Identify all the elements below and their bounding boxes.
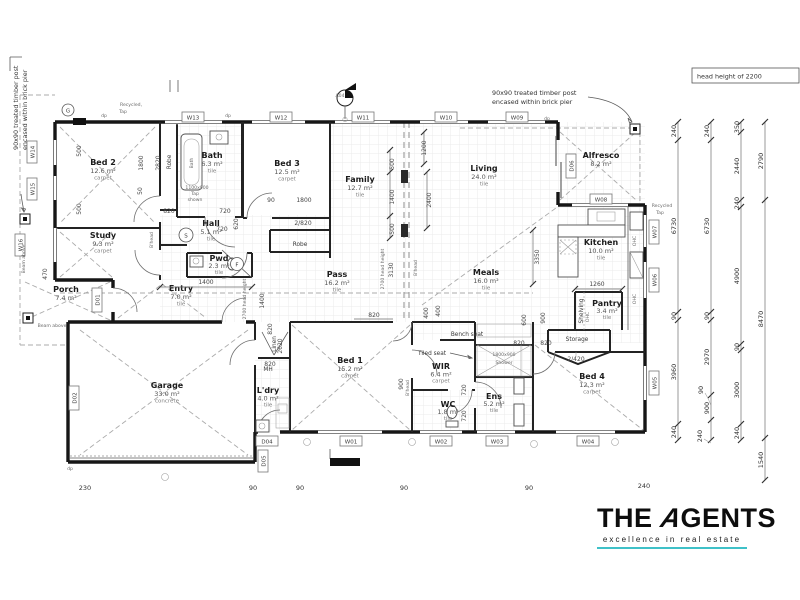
door-tag: D04	[261, 440, 273, 446]
dim-text: 820	[264, 361, 276, 368]
svg-text:24.0 m²: 24.0 m²	[471, 173, 497, 181]
svg-text:33.0 m²: 33.0 m²	[154, 390, 180, 398]
window-tag: W07	[653, 225, 659, 238]
svg-text:3.4 m²: 3.4 m²	[596, 307, 618, 315]
dim-text: 350	[733, 121, 741, 133]
dim-text: 8470	[757, 311, 765, 328]
window-tag: W09	[511, 116, 524, 122]
dim-text: 240	[670, 125, 678, 137]
dim-text: 1400	[389, 189, 396, 204]
floor-waste-symbol: F	[235, 263, 238, 269]
door-tag: D01	[96, 294, 102, 305]
window-tag: W15	[31, 182, 37, 195]
dim-text: 90	[400, 484, 408, 492]
svg-text:6.3 m²: 6.3 m²	[201, 160, 223, 168]
dim-text: 620	[233, 218, 240, 230]
svg-text:2.3 m²: 2.3 m²	[208, 262, 230, 270]
dim-text: 820	[513, 340, 525, 347]
section-tag: A04	[336, 93, 345, 99]
recycled-tap-note: Tap	[655, 210, 664, 216]
dim-text: 1800	[296, 197, 311, 204]
dim-text: 240	[638, 482, 650, 490]
dim-text: 3000	[733, 382, 741, 399]
door-tag: D02	[73, 392, 79, 403]
robe-label: Robe	[293, 242, 308, 248]
svg-text:7.0 m²: 7.0 m²	[170, 293, 192, 301]
post-note-right: encased within brick pier	[492, 98, 573, 106]
svg-text:8.2 m²: 8.2 m²	[590, 160, 612, 168]
dim-text: 90	[670, 312, 678, 320]
dim-text: 500	[76, 145, 83, 157]
dim-text: 2440	[733, 158, 741, 175]
window-tag: W08	[595, 198, 608, 204]
downpipe-mark: dp	[67, 466, 73, 472]
svg-text:Porch: Porch	[53, 285, 79, 294]
gas-symbol: G	[66, 108, 70, 114]
dim-text: 240	[733, 197, 741, 209]
dim-text: 1260	[589, 281, 604, 288]
svg-text:12.7 m²: 12.7 m²	[347, 184, 373, 192]
svg-text:carpet: carpet	[94, 249, 113, 255]
dim-text: 400	[435, 305, 442, 317]
svg-text:Pass: Pass	[327, 270, 348, 279]
svg-text:tile: tile	[480, 182, 489, 188]
dim-text: 500	[389, 223, 396, 235]
storage-label: Storage	[566, 337, 589, 343]
window-tag: W12	[275, 116, 287, 122]
robe-label: Robe	[167, 154, 173, 169]
svg-text:16.2 m²: 16.2 m²	[324, 279, 350, 287]
shower-size-label: 1100x900	[185, 185, 208, 191]
dim-text: 3960	[670, 364, 678, 381]
svg-text:12.6 m²: 12.6 m²	[90, 167, 116, 175]
svg-text:10.0 m²: 10.0 m²	[588, 247, 614, 255]
svg-text:carpet: carpet	[278, 177, 297, 183]
svg-text:tile: tile	[597, 256, 606, 262]
dim-text: 6730	[670, 218, 678, 235]
dim-text: 240	[703, 125, 711, 137]
window-tag: W01	[345, 440, 357, 446]
svg-text:carpet: carpet	[432, 379, 451, 385]
svg-text:Study: Study	[90, 231, 117, 240]
downpipe-mark: dp	[101, 113, 107, 119]
dim-text: 900	[703, 402, 711, 414]
smoke-alarm-symbol: S	[184, 234, 188, 240]
bhead-label: B'head	[405, 380, 411, 396]
svg-text:tile: tile	[356, 193, 365, 199]
window-tag: W02	[435, 440, 447, 446]
svg-text:6.4 m²: 6.4 m²	[430, 371, 452, 379]
downpipe-mark: dp	[225, 113, 231, 119]
dim-text: 720	[219, 208, 231, 215]
logo-underline	[597, 547, 747, 549]
shower-label: Shower	[495, 360, 512, 366]
dim-text: 900	[540, 312, 547, 324]
dim-text: 500	[76, 203, 83, 215]
svg-text:Bed 4: Bed 4	[579, 372, 605, 381]
dim-text: 720	[461, 384, 468, 396]
dim-text: 2/420	[567, 356, 584, 363]
svg-text:concrete: concrete	[155, 399, 180, 405]
dim-text: 1540	[757, 452, 765, 469]
svg-text:Family: Family	[345, 175, 375, 184]
recycled-tap-note: Recycled,	[120, 102, 143, 108]
window-tag: W11	[357, 116, 369, 122]
window-tag: W05	[653, 376, 659, 389]
dim-text: 1200	[421, 140, 428, 155]
dim-text: 820	[163, 208, 175, 215]
dim-text: 820	[540, 340, 552, 347]
room-bed1: Bed 115.2 m²carpet	[337, 356, 363, 380]
room-study: Study9.3 m²carpet	[90, 231, 117, 255]
dim-text: 3130	[388, 262, 395, 277]
beam-above-note: Beam above	[38, 323, 67, 329]
dim-text: 2400	[426, 192, 433, 207]
dim-text: 2820	[155, 155, 162, 170]
svg-text:Alfresco: Alfresco	[583, 151, 620, 160]
dim-text: 820	[267, 323, 274, 335]
svg-text:tile: tile	[264, 403, 273, 409]
logo-stylized-a: A	[658, 505, 683, 532]
svg-text:Bath: Bath	[201, 151, 222, 160]
dim-text: 720	[461, 410, 468, 422]
head-height-note: head height of 2200	[697, 73, 762, 81]
svg-text:carpet: carpet	[341, 374, 360, 380]
svg-text:Bed 2: Bed 2	[90, 158, 116, 167]
svg-text:Garage: Garage	[151, 381, 184, 390]
dim-text: 90	[697, 386, 705, 394]
shower-size-label: 1800x900	[492, 352, 515, 358]
svg-text:Meals: Meals	[473, 268, 500, 277]
window-tag: W10	[440, 116, 453, 122]
svg-text:Bed 1: Bed 1	[337, 356, 363, 365]
dim-text: 90	[525, 484, 533, 492]
window-tag: W06	[653, 273, 659, 286]
svg-text:carpet: carpet	[94, 176, 113, 182]
svg-text:Entry: Entry	[169, 284, 194, 293]
dim-text: 470	[42, 268, 49, 280]
door-tag: D05	[262, 455, 268, 467]
svg-text:9.3 m²: 9.3 m²	[92, 240, 114, 248]
dim-text: 230	[79, 484, 91, 492]
beam-above-note: Beam above	[21, 244, 27, 273]
recycled-tap-note: Tap	[118, 109, 127, 115]
room-wir: WIR6.4 m²carpet	[430, 362, 452, 385]
dim-text: 90	[267, 197, 275, 204]
dim-text: 1400	[259, 293, 266, 308]
dim-text: 2790	[757, 153, 765, 170]
agency-logo: THE AGENTS excellence in real estate	[597, 505, 747, 549]
svg-text:tile: tile	[207, 237, 216, 243]
post-note-right: 90x90 treated timber post	[492, 89, 577, 97]
dim-text: 2970	[703, 349, 711, 366]
floor-plan-page: A04 G S F W13 W12 W11 W10 W09 W08 W01 W0…	[0, 0, 800, 600]
svg-text:tile: tile	[444, 416, 453, 422]
svg-text:Living: Living	[470, 164, 497, 173]
ohc-label: OHC	[585, 312, 591, 322]
bhead-label: B'head	[413, 260, 419, 276]
tiled-seat-label: Tiled seat	[417, 351, 447, 357]
dim-text: 240	[733, 427, 741, 439]
room-bed3: Bed 312.5 m²carpet	[274, 159, 300, 183]
post-note-left: encased within brick pier	[21, 69, 29, 150]
dim-text: 820	[368, 312, 380, 319]
svg-text:12.3 m²: 12.3 m²	[579, 381, 605, 389]
dim-text: 50	[137, 187, 144, 195]
dim-text: 900	[398, 378, 405, 390]
room-bed2: Bed 212.6 m²carpet	[90, 158, 116, 182]
right-dimension-chains: 240 6730 90 3960 240 240 6730 90 2970 90…	[670, 119, 768, 483]
svg-text:tile: tile	[490, 408, 499, 414]
dim-text: 240	[670, 426, 678, 438]
svg-text:4.0 m²: 4.0 m²	[257, 395, 279, 403]
svg-text:Kitchen: Kitchen	[584, 238, 619, 247]
svg-text:tile: tile	[208, 169, 217, 175]
bhead-label: B'head	[149, 232, 155, 248]
window-tag: W13	[187, 116, 200, 122]
dim-text: 6730	[703, 218, 711, 235]
recycled-tap-note: Recycled	[652, 203, 673, 209]
dim-text: 400	[423, 307, 430, 319]
window-tag: W04	[582, 440, 595, 446]
dim-text: 3350	[534, 249, 541, 264]
svg-text:tile: tile	[603, 315, 612, 321]
dim-text: 90	[733, 343, 741, 351]
svg-text:tile: tile	[215, 270, 224, 276]
svg-text:16.0 m²: 16.0 m²	[473, 277, 499, 285]
svg-text:tile: tile	[482, 286, 491, 292]
post-note-left: 90x90 treated timber post	[12, 65, 20, 150]
bath-tub-label: Bath	[189, 158, 195, 169]
dim-text: 1400	[198, 279, 213, 286]
bottom-dimensions: 230 90 90 90 90 240	[79, 482, 650, 492]
ohc-label: OHC	[632, 236, 638, 246]
room-garage: Garage33.0 m²concrete	[151, 381, 184, 405]
head-height-label: 2700 head height	[242, 278, 248, 319]
room-bed4: Bed 412.3 m²carpet	[579, 372, 605, 396]
svg-text:5.2 m²: 5.2 m²	[483, 400, 505, 408]
dim-text: 240	[696, 430, 704, 442]
bench-seat-label: Bench seat	[451, 332, 484, 338]
svg-text:15.2 m²: 15.2 m²	[337, 365, 363, 373]
svg-text:tile: tile	[177, 302, 186, 308]
agency-logo-title: THE AGENTS	[597, 505, 747, 532]
shelving-label: Shelving	[579, 298, 585, 323]
svg-text:Bed 3: Bed 3	[274, 159, 300, 168]
dim-text: 500	[389, 158, 396, 170]
dim-text: 2/820	[294, 220, 311, 227]
svg-text:carpet: carpet	[583, 390, 602, 396]
svg-text:tile: tile	[333, 288, 342, 294]
door-tag: D06	[570, 160, 576, 172]
dim-text: 600	[521, 314, 528, 326]
head-height-label: 2700 head height	[380, 248, 386, 289]
section-marker-a04-bottom	[330, 449, 360, 466]
dim-text: 1800	[138, 155, 145, 170]
dim-text: 2620	[277, 338, 284, 353]
window-tag: W03	[491, 440, 504, 446]
dim-text: 4900	[733, 268, 741, 285]
room-porch: Porch7.4 m²	[53, 285, 79, 302]
svg-text:12.5 m²: 12.5 m²	[274, 168, 300, 176]
window-tag: W14	[31, 145, 37, 158]
downpipe-mark: dp	[544, 116, 550, 122]
ohc-label: OHC	[632, 294, 638, 304]
dim-text: 90	[296, 484, 304, 492]
shown-label: shown	[188, 197, 203, 203]
dim-text: 90	[249, 484, 257, 492]
dim-text: 720	[216, 226, 228, 233]
agency-logo-tagline: excellence in real estate	[597, 535, 747, 544]
dim-text: 90	[703, 312, 711, 320]
svg-text:1.8 m²: 1.8 m²	[437, 408, 459, 416]
tap-label: Tap	[190, 191, 199, 197]
svg-text:7.4 m²: 7.4 m²	[55, 294, 77, 302]
